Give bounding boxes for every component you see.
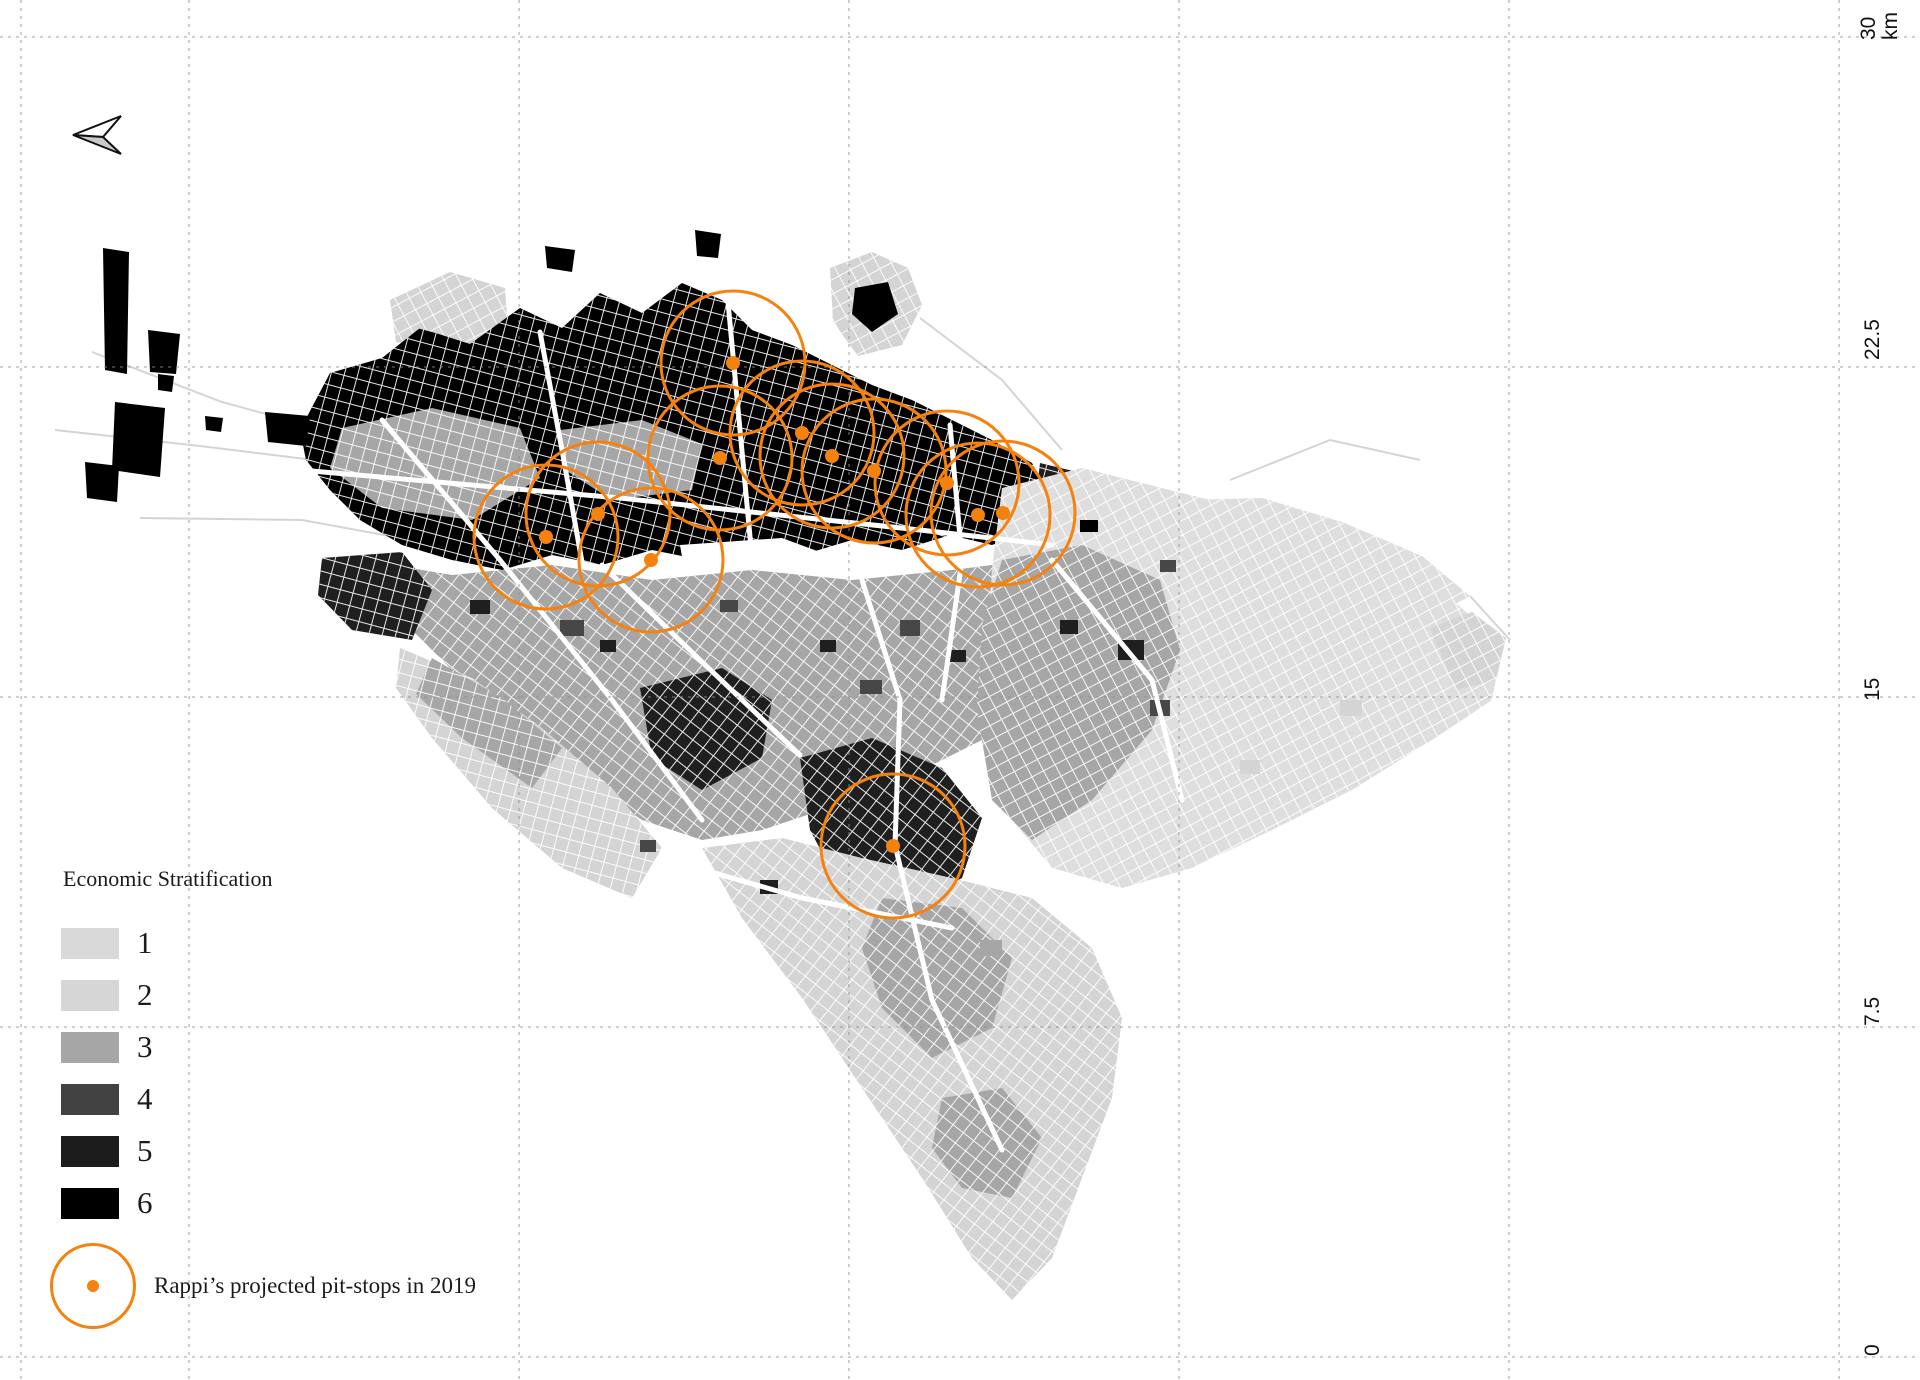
pit-stop-dot — [539, 530, 553, 544]
district-polygon — [545, 246, 575, 272]
stratum-swatch — [61, 1188, 119, 1219]
city-block — [640, 840, 656, 852]
stratum-label: 4 — [137, 1081, 153, 1117]
district-polygon — [205, 416, 223, 432]
city-block — [980, 940, 1002, 956]
pit-stop-dot — [825, 449, 839, 463]
city-block — [560, 620, 584, 636]
scale-tick-label: 22.5 — [1862, 319, 1884, 360]
pit-stop-dot — [726, 356, 740, 370]
district-polygon — [695, 230, 721, 258]
city-block — [950, 650, 966, 662]
city-block — [1080, 520, 1098, 532]
stratum-label: 2 — [137, 977, 153, 1013]
pitstop-legend-circle-icon — [50, 1243, 136, 1329]
city-block — [1340, 700, 1362, 716]
stratum-label: 1 — [137, 925, 153, 961]
city-block — [470, 600, 490, 614]
city-block — [820, 640, 836, 652]
stratum-swatch — [61, 980, 119, 1011]
scale-tick-label: 0 — [1862, 1344, 1884, 1356]
north-arrow — [73, 116, 121, 154]
stratum-label: 3 — [137, 1029, 153, 1065]
north-arrow-lower-icon — [73, 135, 121, 154]
city-block — [1160, 560, 1176, 572]
district-streets-texture — [318, 552, 432, 640]
city-block — [1240, 760, 1260, 774]
map-canvas: 30 km22.5157.50 Economic Stratification … — [0, 0, 1920, 1380]
district-polygon — [265, 412, 310, 446]
pit-stop-dot — [971, 508, 985, 522]
pit-stop-dot — [795, 426, 809, 440]
district-polygon — [112, 402, 165, 477]
pit-stop-dot — [886, 839, 900, 853]
rural-road — [1230, 440, 1420, 480]
legend-row: 5 — [61, 1125, 153, 1177]
district-polygon — [85, 462, 119, 502]
city-block — [1060, 620, 1078, 634]
districts-layer — [85, 230, 1506, 1300]
city-map — [0, 0, 1920, 1380]
legend-row: 3 — [61, 1021, 153, 1073]
stratum-label: 6 — [137, 1185, 153, 1221]
stratum-swatch — [61, 1032, 119, 1063]
pit-stop-dot — [644, 553, 658, 567]
city-block — [720, 600, 738, 612]
scale-tick-label: 30 km — [1858, 12, 1902, 40]
city-block — [600, 640, 616, 652]
pit-stop-dot — [996, 506, 1010, 520]
pit-stop-dot — [940, 476, 954, 490]
legend-title: Economic Stratification — [63, 866, 273, 892]
city-block — [860, 680, 882, 694]
city-block — [900, 620, 920, 636]
scale-tick-label: 7.5 — [1862, 997, 1884, 1026]
district-polygon — [158, 374, 174, 392]
legend-row: 2 — [61, 969, 153, 1021]
legend-row: 4 — [61, 1073, 153, 1125]
stratum-swatch — [61, 1136, 119, 1167]
pitstop-legend-label: Rappi’s projected pit-stops in 2019 — [154, 1273, 476, 1299]
stratum-label: 5 — [137, 1133, 153, 1169]
legend-row: 6 — [61, 1177, 153, 1229]
pit-stop-dot — [713, 451, 727, 465]
legend-row: 1 — [61, 917, 153, 969]
stratum-swatch — [61, 1084, 119, 1115]
district-polygon — [103, 248, 129, 374]
pitstop-legend-dot-icon — [87, 1280, 99, 1292]
pitstop-legend: Rappi’s projected pit-stops in 2019 — [50, 1243, 476, 1329]
stratification-legend: 123456 — [61, 917, 153, 1229]
scale-tick-label: 15 — [1862, 678, 1884, 701]
north-arrow-upper-icon — [73, 116, 121, 137]
stratum-swatch — [61, 928, 119, 959]
